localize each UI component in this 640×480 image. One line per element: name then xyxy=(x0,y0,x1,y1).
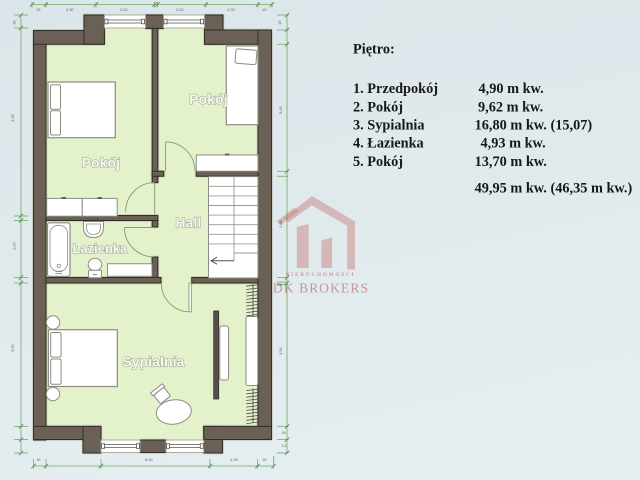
svg-text:3,95: 3,95 xyxy=(278,346,283,355)
svg-text:2,88: 2,88 xyxy=(278,219,283,228)
svg-text:30: 30 xyxy=(277,282,282,287)
svg-text:4,05: 4,05 xyxy=(10,113,15,122)
svg-text:4,90 m kw.: 4,90 m kw. xyxy=(479,81,544,97)
svg-text:90: 90 xyxy=(282,430,287,435)
svg-text:Piętro:: Piętro: xyxy=(353,42,395,58)
svg-text:18: 18 xyxy=(36,457,41,462)
svg-text:5. Pokój: 5. Pokój xyxy=(353,154,403,170)
svg-text:16,80 m kw. (15,07): 16,80 m kw. (15,07) xyxy=(475,118,593,134)
svg-text:3,95: 3,95 xyxy=(10,343,15,352)
svg-text:1. Przedpokój: 1. Przedpokój xyxy=(353,81,438,97)
svg-text:4,30: 4,30 xyxy=(227,7,236,12)
svg-text:18: 18 xyxy=(36,7,41,12)
svg-text:Łazienka: Łazienka xyxy=(73,242,129,256)
svg-text:18: 18 xyxy=(262,457,267,462)
svg-text:Hall: Hall xyxy=(175,216,201,231)
svg-text:4,93 m kw.: 4,93 m kw. xyxy=(481,136,546,152)
svg-text:18: 18 xyxy=(12,20,17,25)
svg-text:3. Sypialnia: 3. Sypialnia xyxy=(353,118,425,134)
svg-text:2,62: 2,62 xyxy=(12,241,17,250)
svg-text:18: 18 xyxy=(262,7,267,12)
svg-text:13,70 m kw.: 13,70 m kw. xyxy=(475,154,547,170)
svg-text:3,60: 3,60 xyxy=(120,7,129,12)
svg-text:3,60: 3,60 xyxy=(278,105,283,114)
svg-text:Sypialnia: Sypialnia xyxy=(122,355,185,370)
svg-text:18: 18 xyxy=(277,20,282,25)
svg-text:4. Łazienka: 4. Łazienka xyxy=(353,136,424,152)
svg-text:Pokój: Pokój xyxy=(189,92,228,107)
svg-text:4,30: 4,30 xyxy=(230,457,239,462)
svg-text:Pokój: Pokój xyxy=(82,156,121,171)
svg-text:13: 13 xyxy=(282,443,287,448)
svg-text:NIERUCHOMOŚCI: NIERUCHOMOŚCI xyxy=(286,270,356,278)
svg-text:4,30: 4,30 xyxy=(66,7,75,12)
svg-text:49,95 m kw. (46,35 m kw.): 49,95 m kw. (46,35 m kw.) xyxy=(475,181,633,197)
svg-text:9,62 m kw.: 9,62 m kw. xyxy=(478,99,543,115)
svg-text:8,50: 8,50 xyxy=(145,457,154,462)
svg-text:2. Pokój: 2. Pokój xyxy=(353,99,403,115)
svg-text:3,62: 3,62 xyxy=(176,7,185,12)
